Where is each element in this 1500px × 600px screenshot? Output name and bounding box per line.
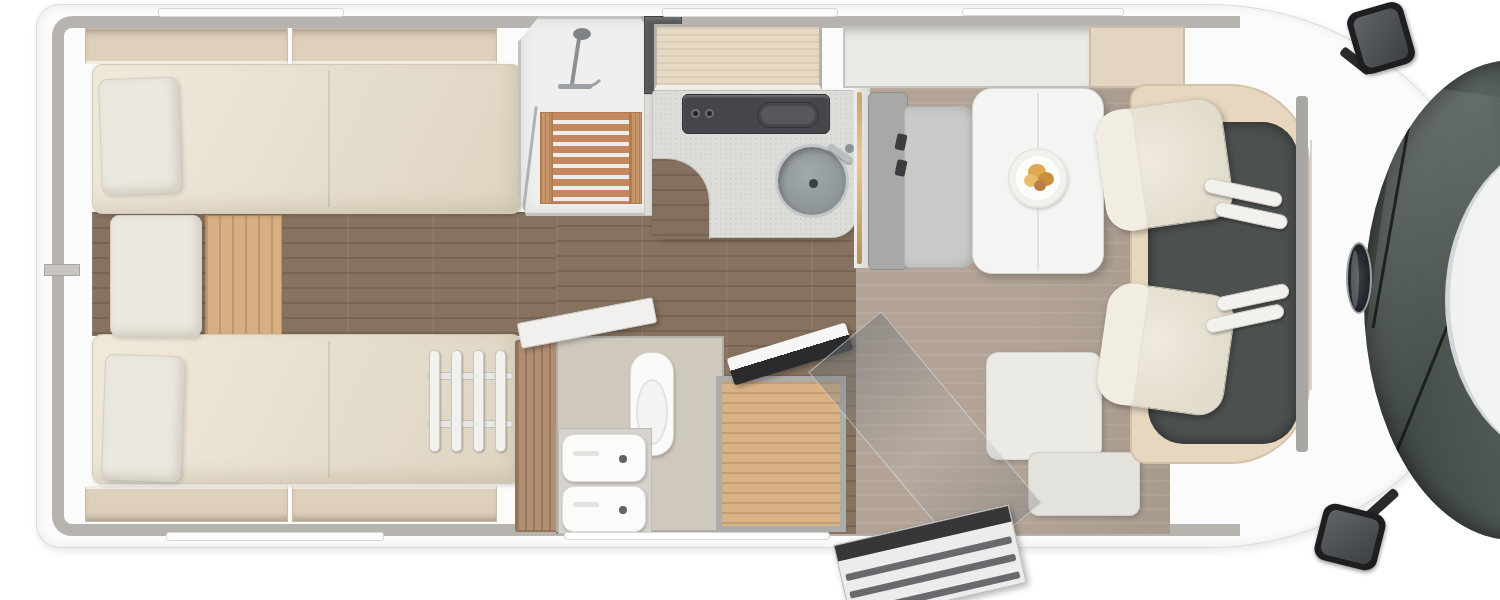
wardrobe — [515, 340, 559, 532]
headboard-cushion — [98, 77, 182, 196]
backrest-cushion — [110, 215, 202, 337]
brass-trim — [857, 92, 862, 264]
cab-roof-seam — [1310, 140, 1312, 390]
window-strip — [166, 532, 384, 541]
window-strip — [962, 8, 1124, 16]
shower-cabin — [518, 16, 660, 216]
entry-wood-platform — [716, 376, 846, 532]
dinette-overhead-panel — [843, 26, 1091, 88]
overhead-shelf — [292, 486, 497, 522]
bedroom-step — [205, 215, 282, 335]
shower-fixture-icon — [542, 22, 622, 106]
shower-grate-frame — [540, 112, 552, 204]
window-strip — [662, 8, 838, 17]
overhead-shelf — [85, 486, 288, 522]
window-strip — [158, 8, 344, 17]
kitchen-overhead-locker — [654, 24, 822, 90]
plate-of-food — [1008, 148, 1068, 208]
brand-badge — [1346, 242, 1372, 314]
motorhome-floorplan — [0, 0, 1500, 600]
hob — [682, 94, 830, 134]
rear-wall-shelf — [44, 264, 80, 276]
shower-glass-door — [521, 106, 537, 216]
faucet-knob-icon — [845, 144, 854, 153]
driver-swivel-seat — [1092, 88, 1291, 262]
cab-overhead-band — [1089, 26, 1185, 88]
dinette-bench-seat — [904, 106, 978, 268]
windscreen-base-frame — [1296, 96, 1308, 452]
side-bench-backrest — [986, 352, 1102, 460]
passenger-swivel-seat — [1092, 262, 1291, 436]
side-bench-cushion — [1028, 452, 1140, 516]
window-strip — [564, 532, 830, 540]
washbasin — [562, 486, 646, 532]
overhead-shelf — [292, 28, 497, 64]
bed-ladder — [425, 348, 517, 456]
shower-grate-frame — [630, 112, 642, 204]
headboard-cushion — [101, 354, 185, 483]
washbasin — [562, 434, 646, 482]
burner-icon — [757, 102, 819, 128]
dinette-bench-backrest — [868, 92, 908, 270]
overhead-shelf — [85, 28, 288, 64]
shower-grate — [552, 112, 630, 204]
